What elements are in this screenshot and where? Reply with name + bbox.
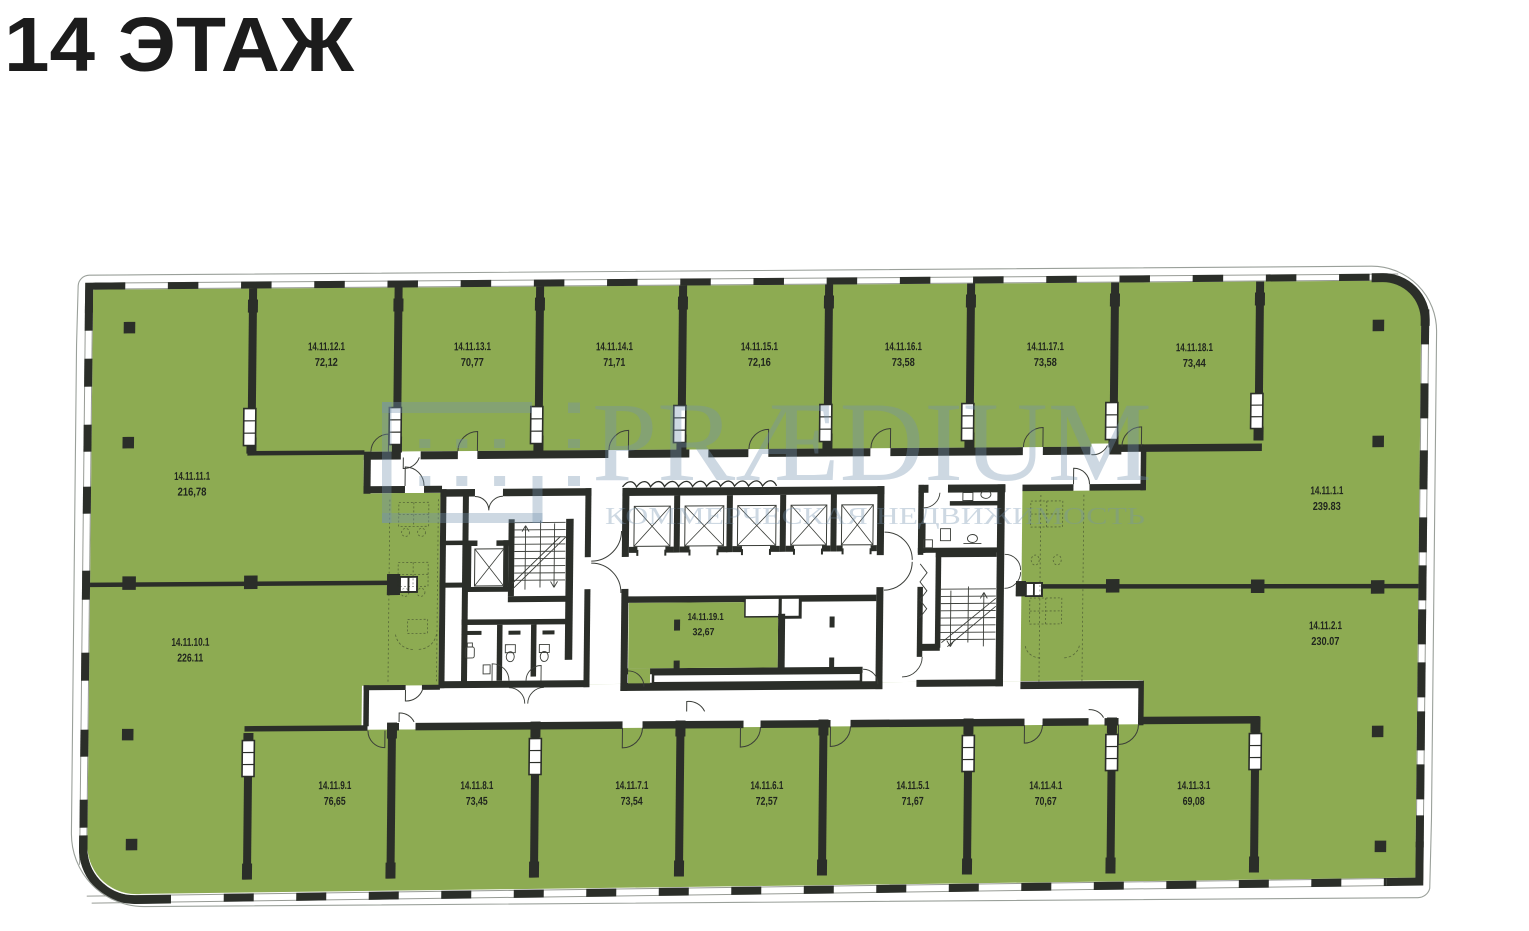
svg-text:230.07: 230.07 (1311, 636, 1339, 648)
svg-text:КОММЕРЧЕСКАЯ НЕДВИЖИМОСТЬ: КОММЕРЧЕСКАЯ НЕДВИЖИМОСТЬ (605, 504, 1145, 530)
svg-text:73,58: 73,58 (1034, 357, 1057, 369)
svg-text:14.11.13.1: 14.11.13.1 (454, 341, 492, 353)
svg-text:70,77: 70,77 (461, 357, 484, 369)
svg-text:14.11.1.1: 14.11.1.1 (1310, 485, 1344, 497)
svg-text:226.11: 226.11 (177, 652, 204, 664)
svg-text:14.11.15.1: 14.11.15.1 (741, 341, 779, 353)
svg-text:14.11.10.1: 14.11.10.1 (171, 637, 210, 649)
svg-text:216,78: 216,78 (177, 486, 206, 498)
svg-text:72,16: 72,16 (748, 357, 771, 369)
svg-text:PRÆDIUM: PRÆDIUM (592, 380, 1152, 505)
svg-text:14.11.9.1: 14.11.9.1 (318, 780, 352, 792)
svg-text:14 ЭТАЖ: 14 ЭТАЖ (4, 2, 354, 88)
svg-text:73,45: 73,45 (466, 796, 489, 808)
svg-text:69,08: 69,08 (1183, 796, 1205, 808)
svg-text:14.11.2.1: 14.11.2.1 (1309, 620, 1343, 632)
svg-text:72,57: 72,57 (756, 796, 778, 808)
svg-text:14.11.12.1: 14.11.12.1 (308, 341, 346, 353)
svg-text:14.11.5.1: 14.11.5.1 (896, 780, 930, 792)
svg-text:73,54: 73,54 (621, 796, 644, 808)
svg-text:14.11.16.1: 14.11.16.1 (885, 341, 923, 353)
svg-text:14.11.6.1: 14.11.6.1 (750, 780, 784, 792)
svg-text:73,58: 73,58 (892, 357, 915, 369)
svg-text:14.11.8.1: 14.11.8.1 (460, 780, 494, 792)
svg-text:14.11.19.1: 14.11.19.1 (688, 612, 724, 623)
svg-text:72,12: 72,12 (315, 357, 338, 369)
svg-text:14.11.14.1: 14.11.14.1 (596, 341, 634, 353)
svg-text:239.83: 239.83 (1313, 501, 1341, 513)
svg-text:32,67: 32,67 (692, 627, 714, 638)
svg-text:76,65: 76,65 (324, 796, 347, 808)
svg-text:14.11.3.1: 14.11.3.1 (1177, 780, 1211, 792)
svg-text:14.11.11.1: 14.11.11.1 (174, 471, 211, 483)
svg-text:14.11.17.1: 14.11.17.1 (1027, 341, 1065, 353)
svg-text:71,67: 71,67 (902, 796, 924, 808)
svg-text:14.11.4.1: 14.11.4.1 (1029, 780, 1063, 792)
svg-text:71,71: 71,71 (603, 357, 626, 369)
svg-text:14.11.7.1: 14.11.7.1 (615, 780, 649, 792)
svg-text:73,44: 73,44 (1183, 358, 1207, 370)
svg-text:70,67: 70,67 (1035, 796, 1057, 808)
svg-text:14.11.18.1: 14.11.18.1 (1176, 342, 1214, 354)
